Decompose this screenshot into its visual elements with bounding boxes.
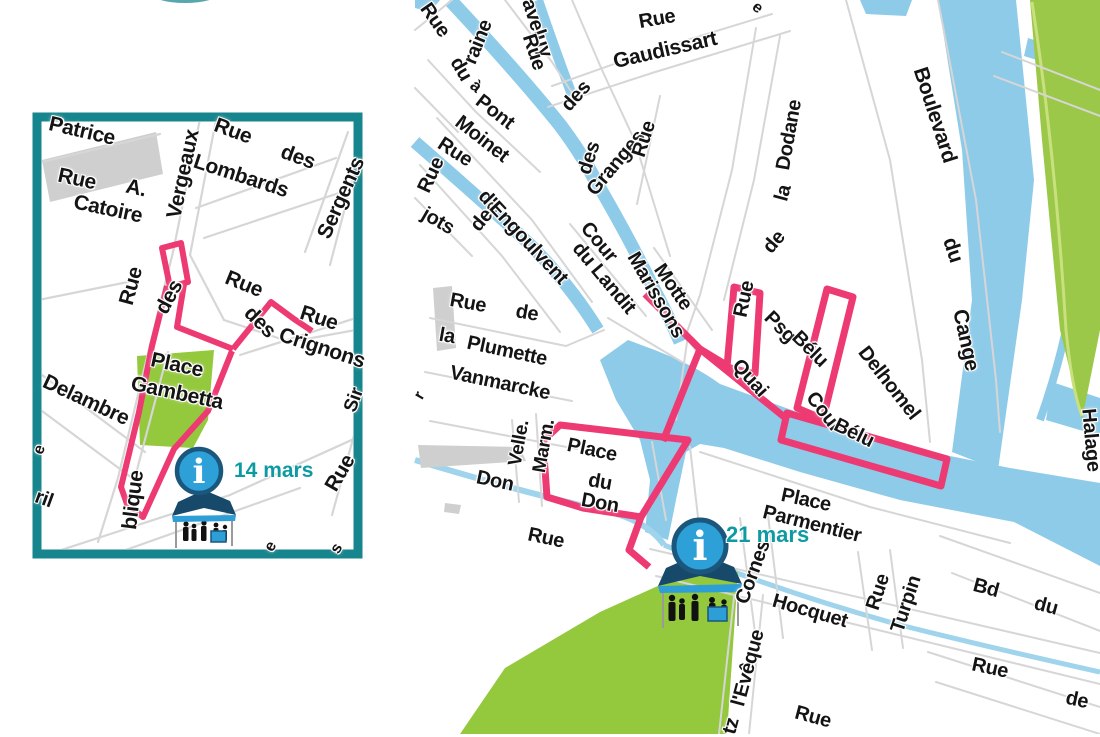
map-canvas: i i [0, 0, 1100, 734]
inset-map-buildings-layer [42, 132, 163, 202]
information-stand-icon [172, 490, 236, 548]
event-date-label: 14 mars [234, 459, 313, 483]
event-date-label: 21 mars [726, 522, 809, 548]
info-icon-glyph: i [692, 523, 707, 570]
map-page: i i PatriceRueA.CatoireVergeauxRuedesLom… [0, 0, 1100, 734]
teal-badge-sliver [151, 0, 219, 3]
info-icon: i [674, 520, 726, 572]
info-icon-glyph: i [193, 452, 206, 492]
info-icon: i [177, 449, 221, 493]
